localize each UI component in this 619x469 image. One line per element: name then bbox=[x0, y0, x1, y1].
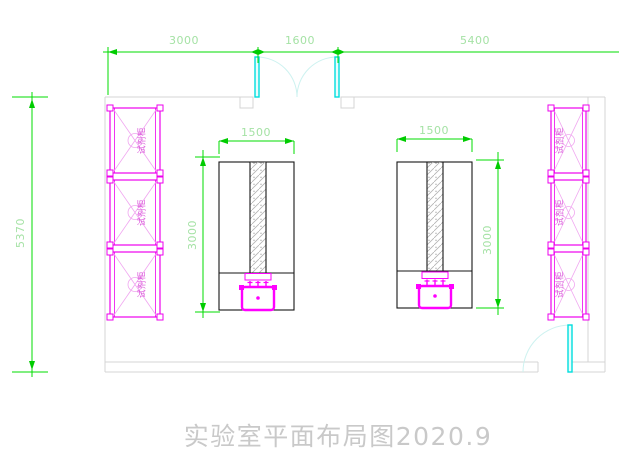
service-duct-hatch bbox=[427, 162, 443, 271]
entrance-double-door bbox=[255, 57, 339, 97]
cabinet-label: 试剂柜 bbox=[555, 271, 566, 298]
dimension-bench-left-width: 1500 bbox=[219, 126, 294, 154]
dimension-bench-left-depth: 3000 bbox=[186, 150, 220, 318]
cabinet-cell: 试剂柜 bbox=[107, 105, 163, 176]
sink-apparatus bbox=[416, 272, 454, 308]
cabinet-label: 试剂柜 bbox=[137, 271, 148, 298]
door-swing-arc bbox=[523, 325, 570, 372]
cabinet-cell: 试剂柜 bbox=[548, 249, 589, 320]
drawing-title: 实验室平面布局图2020.9 bbox=[184, 422, 492, 451]
dim-top-middle: 1600 bbox=[285, 34, 315, 47]
sink-apparatus bbox=[239, 274, 277, 311]
cabinet-cell: 试剂柜 bbox=[548, 105, 589, 176]
lab-bench-right bbox=[397, 162, 472, 308]
dim-top-left: 3000 bbox=[169, 34, 199, 47]
cabinet-label: 试剂柜 bbox=[137, 199, 148, 226]
cabinet-cell: 试剂柜 bbox=[107, 177, 163, 248]
door-swing-arc-left bbox=[257, 57, 297, 97]
cabinet-label: 试剂柜 bbox=[137, 127, 148, 154]
dimension-room-height: 5370 bbox=[12, 92, 48, 377]
dim-room-height: 5370 bbox=[14, 218, 27, 248]
reagent-cabinet-column-right: 试剂柜 试剂柜 试剂柜 bbox=[548, 105, 589, 320]
dimension-bench-right-width: 1500 bbox=[397, 124, 472, 152]
dim-bench-left-width: 1500 bbox=[241, 126, 271, 139]
side-door bbox=[523, 325, 572, 372]
dimension-chain-top: 3000 1600 5400 bbox=[103, 34, 619, 95]
cabinet-cell: 试剂柜 bbox=[548, 177, 589, 248]
door-jamb-right bbox=[341, 97, 354, 108]
reagent-cabinet-column-left: 试剂柜 试剂柜 试剂柜 bbox=[107, 105, 163, 320]
door-jamb-left bbox=[240, 97, 253, 108]
cabinet-label: 试剂柜 bbox=[555, 127, 566, 154]
floor-plan-canvas: 试剂柜 试剂柜 试剂柜 bbox=[0, 0, 619, 469]
lab-bench-left bbox=[219, 162, 294, 310]
door-leaf bbox=[568, 325, 572, 372]
wall-outline bbox=[105, 97, 605, 372]
cabinet-label: 试剂柜 bbox=[555, 199, 566, 226]
dim-bench-right-width: 1500 bbox=[419, 124, 449, 137]
door-swing-arc-right bbox=[297, 57, 337, 97]
dimension-bench-right-depth: 3000 bbox=[476, 152, 504, 315]
dim-bench-left-depth: 3000 bbox=[186, 220, 199, 250]
dim-bench-right-depth: 3000 bbox=[481, 225, 494, 255]
service-duct-hatch bbox=[250, 162, 266, 273]
dim-top-right: 5400 bbox=[460, 34, 490, 47]
cabinet-cell: 试剂柜 bbox=[107, 249, 163, 320]
